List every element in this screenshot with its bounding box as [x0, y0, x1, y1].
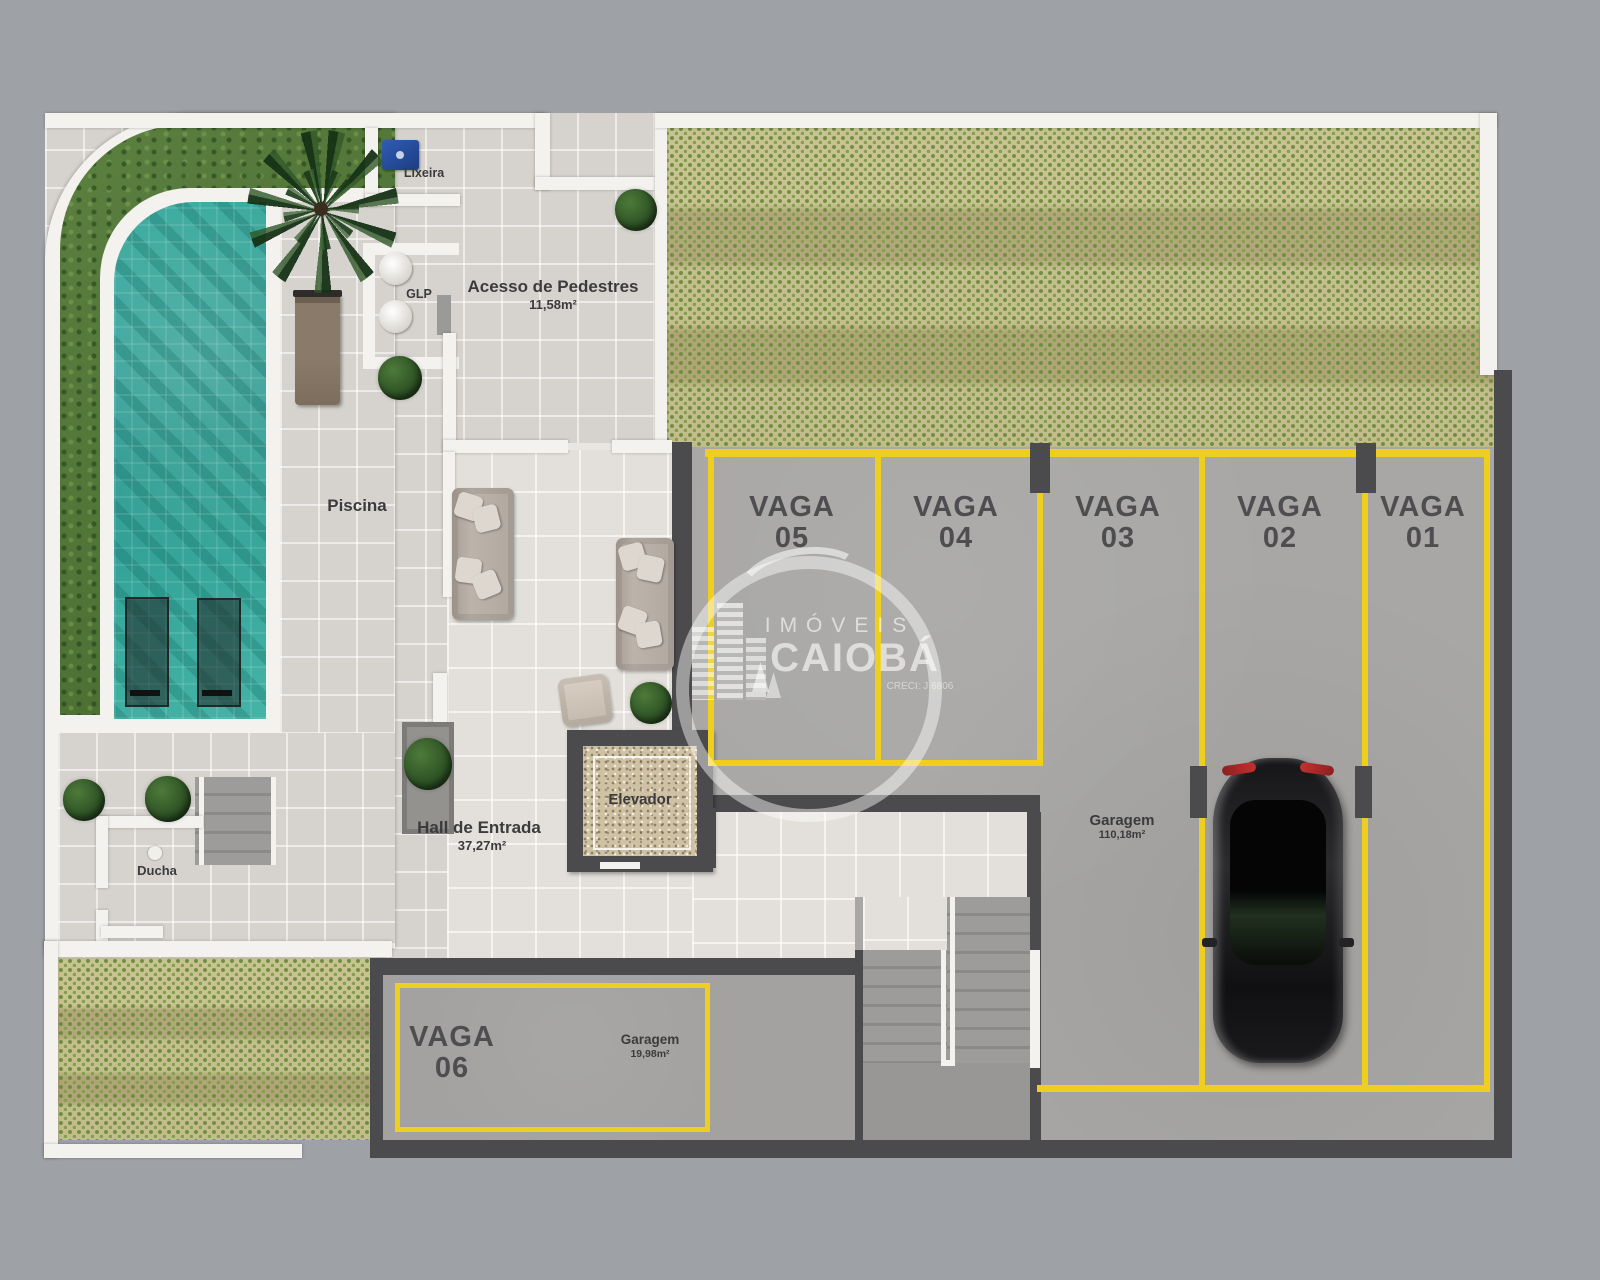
corridor-floor-3 [863, 897, 947, 950]
lounger-foot-bar-2 [202, 690, 232, 696]
watermark-brand-main: CAIOBÁ [755, 636, 955, 681]
stall-word: VAGA [409, 1022, 495, 1053]
stall-number: 01 [1380, 523, 1466, 554]
stall-label-vaga03: VAGA 03 [1075, 492, 1161, 554]
hall-top-wall-2 [612, 440, 672, 453]
driveway-paver-yard [58, 958, 377, 1140]
paver-divider-wall [655, 128, 667, 449]
garagem-label: Garagem [1089, 812, 1154, 829]
hall-top-wall [443, 440, 568, 453]
car-mirror-left [1202, 938, 1217, 947]
steps-rail-2 [271, 777, 276, 865]
stall-word: VAGA [913, 492, 999, 523]
vaga06-wall-left [370, 958, 383, 1142]
glp-label: GLP [406, 287, 432, 301]
lounger-foot-bar [130, 690, 160, 696]
vaga06-wall-top [377, 958, 855, 975]
stall-word: VAGA [749, 492, 835, 523]
acesso-area: 11,58m² [529, 297, 577, 312]
stall-word: VAGA [1237, 492, 1323, 523]
sofa2-pillow-2 [636, 554, 666, 584]
hall-label: Hall de Entrada [417, 818, 541, 838]
garage-bottom-wall [370, 1140, 1512, 1158]
stall-label-vaga04: VAGA 04 [913, 492, 999, 554]
lixeira-label: Lixeira [404, 166, 444, 180]
stall-line-v6 [1484, 449, 1490, 1090]
armchair [557, 673, 613, 727]
stairs-handrail-2 [950, 897, 955, 1066]
bush-4 [145, 776, 191, 822]
floor-plan: Piscina Lixeira GLP Acesso de Pedestres … [0, 0, 1600, 1280]
stall-number: 03 [1075, 523, 1161, 554]
sofa2-pillow-4 [634, 620, 663, 649]
stall-label-vaga05: VAGA 05 [749, 492, 835, 554]
column-4 [1355, 766, 1372, 818]
watermark-creci: CRECI: J 6806 [860, 681, 980, 692]
stairs-lower-flight [863, 950, 947, 1063]
stall-label-vaga01: VAGA 01 [1380, 492, 1466, 554]
shower-head [148, 846, 162, 860]
paver-right-wall [1480, 113, 1497, 375]
hall-door-sill [568, 443, 612, 450]
watermark-building-icon-2 [717, 603, 743, 700]
corridor-floor [692, 812, 855, 958]
piscina-label: Piscina [327, 496, 387, 516]
garagem-vaga06-label: Garagem [621, 1032, 680, 1047]
permeable-paver-area [660, 117, 1497, 449]
stall-word: VAGA [1380, 492, 1466, 523]
watermark-building-icon [692, 627, 714, 700]
stall-word: VAGA [1075, 492, 1161, 523]
garagem-area: 110,18m² [1099, 829, 1145, 841]
elevator-door-sill [600, 862, 640, 869]
stall-label-vaga06: VAGA 06 [409, 1022, 495, 1084]
garage-right-wall [1494, 370, 1512, 1158]
paver-top-wall [655, 113, 1497, 128]
glp-door-sill [437, 295, 451, 335]
bush [615, 189, 657, 231]
ducha-label: Ducha [137, 863, 177, 878]
hall-area: 37,27m² [458, 838, 506, 853]
gas-tank-2 [379, 300, 412, 333]
car-mirror-right [1339, 938, 1354, 947]
column-3 [1190, 766, 1207, 818]
hall-left-wall-2 [433, 673, 447, 725]
sun-lounger [295, 293, 340, 405]
stall-line-bottom-321 [1037, 1085, 1490, 1092]
acesso-label: Acesso de Pedestres [467, 277, 638, 297]
dumpster-cap [396, 151, 404, 159]
acesso-left-wall [443, 333, 456, 452]
top-wall [45, 113, 545, 128]
yard-left-wall [44, 941, 58, 1158]
pool-steps [195, 777, 275, 865]
corridor-floor-2 [855, 812, 1027, 897]
stall-label-vaga02: VAGA 02 [1237, 492, 1323, 554]
column [1030, 443, 1050, 493]
yard-bottom-wall [44, 1144, 302, 1158]
stall-number: 04 [913, 523, 999, 554]
palm-trunk [314, 202, 328, 216]
bush-2 [378, 356, 422, 400]
potted-plant [630, 682, 672, 724]
bush-3 [63, 779, 105, 821]
stall-line-v3 [1037, 449, 1043, 766]
garagem-vaga06-area: 19,98m² [630, 1048, 669, 1060]
ducha-wall-left [96, 816, 108, 888]
ducha-wall-bottom [101, 926, 163, 938]
column-2 [1356, 443, 1376, 493]
stairs-landing [863, 1063, 1030, 1140]
stairs-upper-flight [947, 897, 1030, 1063]
watermark-brand-top: IMÓVEIS [760, 614, 920, 638]
elevator-stub-wall [703, 808, 716, 868]
stall-number: 06 [409, 1053, 495, 1084]
ducha-wall-top [98, 816, 203, 828]
elevador-label: Elevador [608, 791, 671, 808]
stairs-handrail [941, 950, 946, 1066]
car-roof-glass [1230, 800, 1326, 965]
acesso-top-wall [535, 177, 665, 190]
yard-top-wall [44, 941, 392, 957]
planter-plant [404, 738, 452, 790]
stairs-handrail-turn [941, 1060, 955, 1066]
stall-number: 02 [1237, 523, 1323, 554]
